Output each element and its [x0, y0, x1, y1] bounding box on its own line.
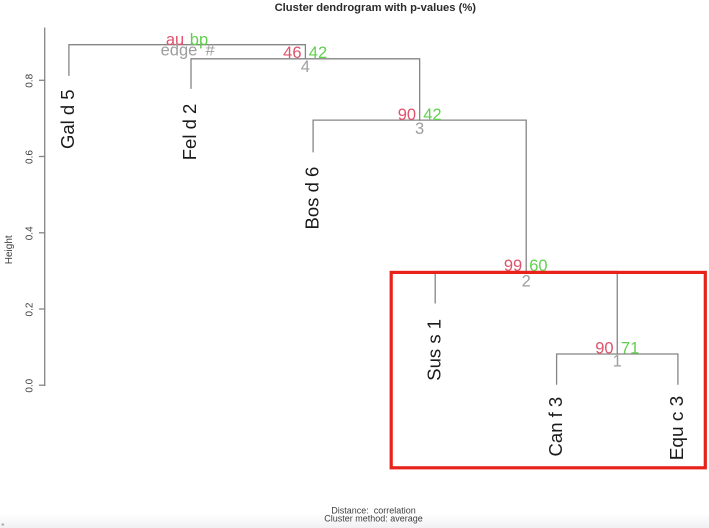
svg-text:2: 2: [522, 273, 531, 291]
svg-text:Cluster method: average: Cluster method: average: [324, 514, 423, 524]
svg-text:1: 1: [613, 353, 622, 371]
svg-text:90: 90: [595, 340, 613, 358]
svg-text:0.6: 0.6: [25, 150, 36, 164]
svg-text:#: #: [206, 42, 216, 60]
svg-text:46: 46: [283, 44, 301, 62]
svg-text:42: 42: [423, 106, 441, 124]
svg-text:Fel d 2: Fel d 2: [179, 104, 200, 161]
svg-text:0.8: 0.8: [25, 73, 36, 87]
svg-text:Height: Height: [4, 235, 15, 264]
svg-text:0.0: 0.0: [25, 378, 36, 392]
svg-text:42: 42: [309, 44, 327, 62]
svg-text:Cluster dendrogram with p-valu: Cluster dendrogram with p-values (%): [275, 2, 477, 14]
svg-text:Equ c 3: Equ c 3: [666, 396, 687, 461]
svg-text:3: 3: [415, 120, 424, 138]
svg-text:4: 4: [301, 58, 310, 76]
svg-text:90: 90: [398, 106, 416, 124]
svg-text:0.2: 0.2: [25, 302, 36, 316]
svg-text:Gal d 5: Gal d 5: [57, 89, 78, 149]
svg-text:Bos d 6: Bos d 6: [301, 167, 322, 230]
svg-text:71: 71: [621, 340, 639, 358]
svg-text:Sus s 1: Sus s 1: [423, 319, 444, 381]
svg-text:Can f 3: Can f 3: [545, 397, 566, 457]
svg-text:0.4: 0.4: [25, 226, 36, 240]
svg-text:edge: edge: [161, 42, 198, 60]
